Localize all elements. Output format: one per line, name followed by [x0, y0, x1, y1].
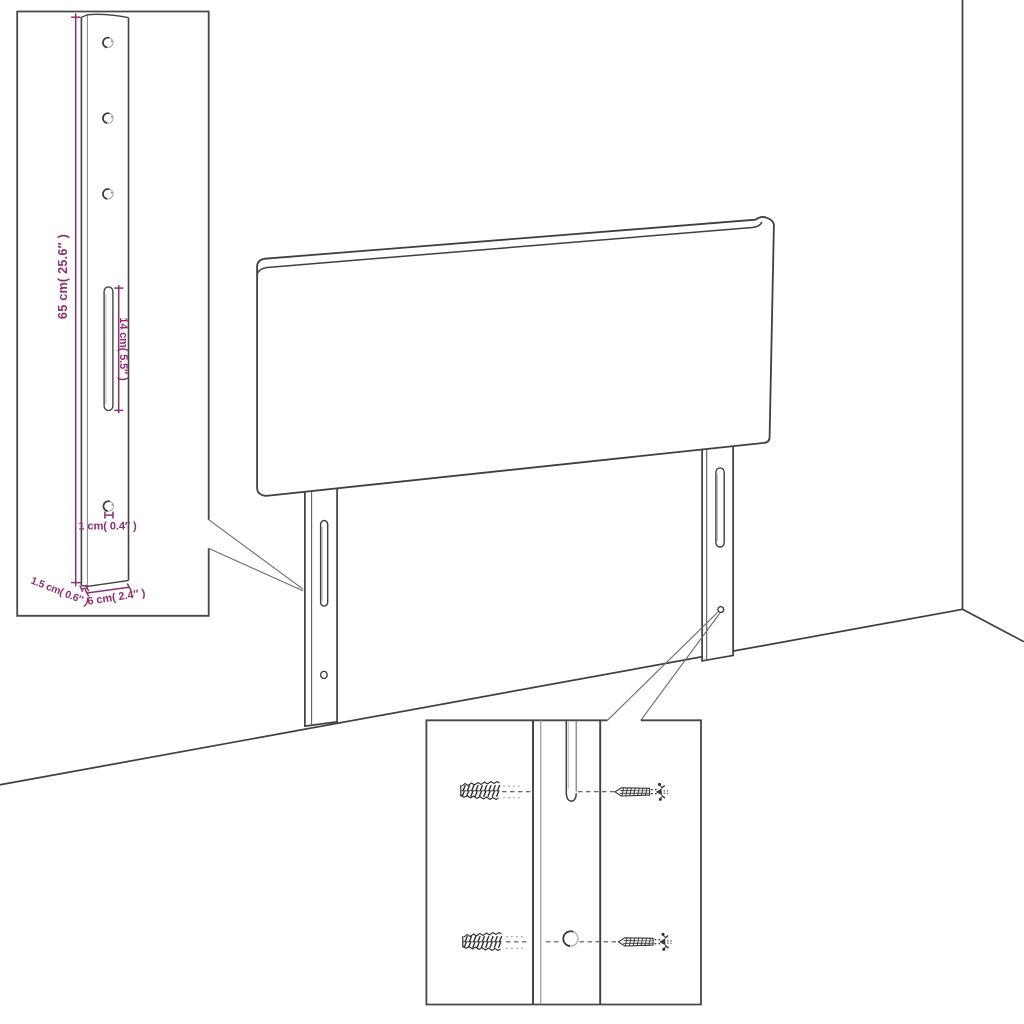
- svg-text:1 cm( 0.4″ ): 1 cm( 0.4″ ): [78, 520, 137, 532]
- svg-text:14 cm( 5.5″ ): 14 cm( 5.5″ ): [117, 317, 129, 381]
- svg-text:65 cm( 25.6″ ): 65 cm( 25.6″ ): [56, 234, 70, 319]
